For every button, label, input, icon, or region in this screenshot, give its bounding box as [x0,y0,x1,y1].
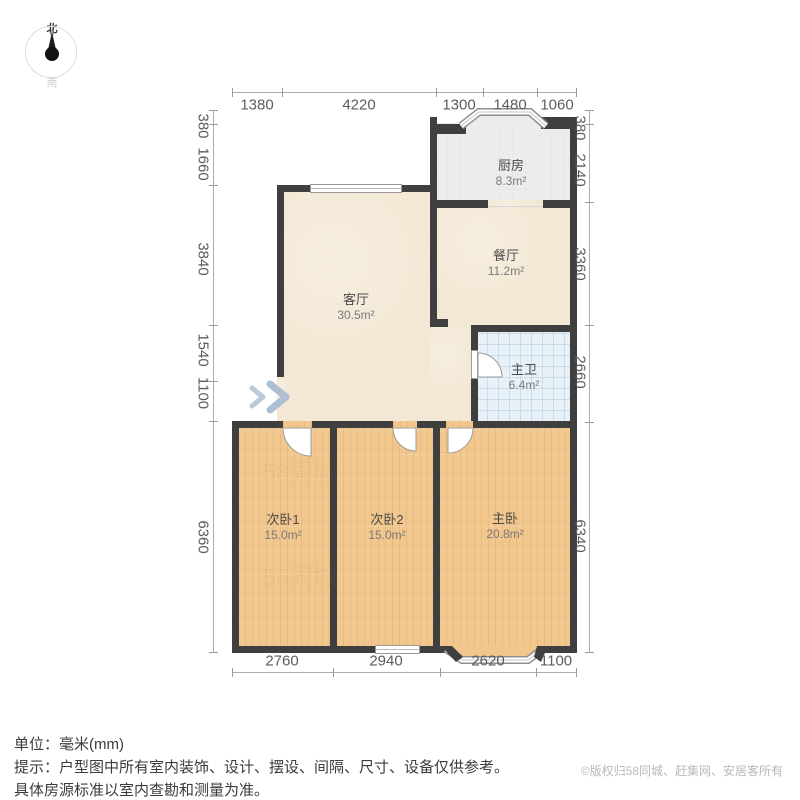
wall-bedroom2-master-divider [433,428,440,646]
footer-tip-line-2: 具体房源标准以室内查勘和测量为准。 [14,779,269,800]
dim-left-1: 380 [195,113,212,138]
watermark-text: 58同城 [263,453,338,488]
dim-tick [576,668,577,677]
dim-bottom-4: 1100 [540,653,572,670]
wall-bedrooms-top-2 [312,421,393,428]
wall-kitchen-bottom-right [543,200,577,208]
floorplan: 58同城 58同城 厨房 8.3m² 餐厅 11.2m² 客厅 30.5m² 主… [0,0,800,800]
dim-tick [282,88,283,97]
room-label-kitchen: 厨房 8.3m² [496,158,527,189]
dimension-line-right [589,110,590,653]
dim-right-3: 3360 [572,247,589,280]
dim-tick [333,668,334,677]
dim-tick [209,421,218,422]
wall-bottom-1 [232,646,375,653]
wall-divider-stub [437,319,448,327]
dim-tick [576,88,577,97]
dimension-line-bottom [232,672,576,673]
dim-right-4: 2660 [572,355,589,388]
bedroom-doorway-floor-3 [446,421,473,428]
dim-tick [585,110,594,111]
dim-bottom-2: 2940 [369,653,402,670]
dim-right-5: 6340 [572,519,589,552]
wall-bathroom-left-upper [471,325,478,351]
dim-tick [483,88,484,97]
footer-copyright: ©版权归58同城、赶集网、安居客所有 [581,762,783,779]
wall-bottom-2 [420,646,446,653]
dim-tick [209,652,218,653]
wall-bathroom-top [471,325,577,332]
wall-kitchen-bottom-left [430,200,488,208]
dim-tick [440,668,441,677]
dimension-line-top [232,92,577,93]
bedroom-doorway-floor-2 [393,421,417,428]
footer-unit-line: 单位：毫米(mm) [14,733,124,754]
room-label-bathroom: 主卫 6.4m² [509,362,540,393]
watermark-text: 58同城 [263,558,338,593]
dim-top-3: 1300 [442,97,475,114]
room-label-living: 客厅 30.5m² [337,292,374,323]
dim-tick [537,88,538,97]
dim-top-2: 4220 [342,97,375,114]
dim-bottom-1: 2760 [265,653,298,670]
wall-bedrooms-top-4 [473,421,577,428]
dim-left-3: 3840 [195,242,212,275]
wall-bedrooms-top-3 [417,421,446,428]
dim-bottom-3: 2620 [471,653,504,670]
bathroom-door-leaf [471,350,478,379]
dim-tick [585,202,594,203]
dim-tick [209,325,218,326]
dim-tick [585,325,594,326]
dim-left-2: 1660 [195,147,212,180]
wall-kitchen-top-left [430,124,466,134]
dim-tick [585,652,594,653]
wall-bedrooms-top-1 [232,421,283,428]
room-label-master-bedroom: 主卧 20.8m² [486,511,523,542]
dim-left-5: 1100 [195,377,212,409]
dim-tick [209,110,218,111]
dim-top-1: 1380 [240,97,273,114]
footer-tip-line-1: 提示：户型图中所有室内装饰、设计、摆设、间隔、尺寸、设备仅供参考。 [14,756,509,777]
wall-left-outer [232,421,239,653]
dim-tick [209,185,218,186]
wall-living-top-right [402,185,437,192]
dim-tick [536,668,537,677]
dim-tick [585,422,594,423]
living-room-window [310,184,402,193]
bedroom-doorway-floor-1 [283,421,312,428]
dim-left-6: 6360 [195,520,212,553]
dim-top-5: 1060 [540,97,573,114]
wall-bathroom-left-lower [471,378,478,421]
floorplan-page: { "compass": { "north": "北", "south": "南… [0,0,800,800]
wall-living-left [277,185,284,377]
dim-right-2: 2140 [572,153,589,186]
entry-opening-floor [277,377,285,422]
room-label-bedroom2: 次卧2 15.0m² [368,512,405,543]
dim-tick [436,88,437,97]
hallway-floor [430,325,474,423]
dim-right-1: 380 [572,115,589,140]
dim-left-4: 1540 [195,333,212,366]
wall-kitchen-living-divider [430,117,437,327]
dim-tick [232,88,233,97]
dim-top-4: 1480 [493,97,526,114]
room-label-dining: 餐厅 11.2m² [488,248,524,279]
dim-tick [232,668,233,677]
room-label-bedroom1: 次卧1 15.0m² [264,512,301,543]
kitchen-threshold [488,206,543,207]
